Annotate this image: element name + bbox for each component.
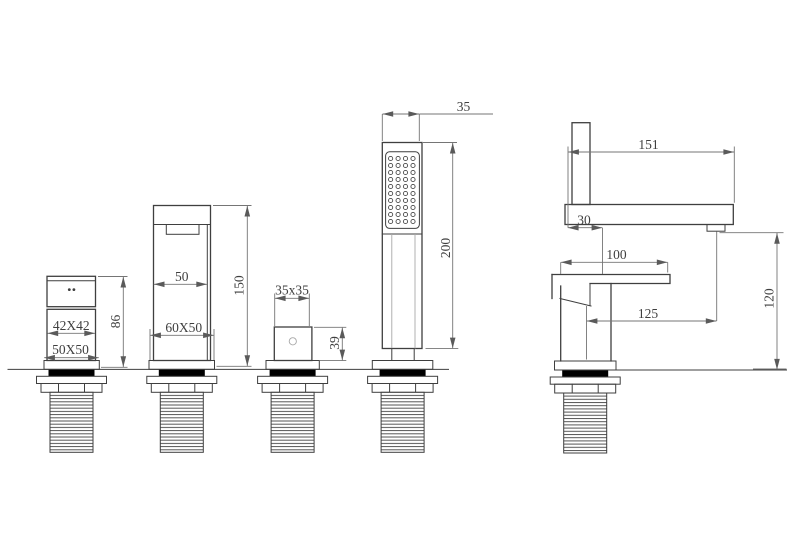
dim-30: 30 [568, 213, 603, 275]
dim-200: 200 [423, 143, 458, 349]
escutcheon-plate [555, 361, 617, 370]
spout-outlet-slot [166, 225, 199, 235]
mount-base [550, 370, 620, 453]
dim-label-120: 120 [762, 288, 777, 309]
spout-aerator-dot [68, 288, 71, 291]
dim-label-35x35: 35x35 [275, 283, 309, 298]
dim-150: 150 [213, 206, 252, 367]
dim-label-60x50: 60X50 [165, 320, 202, 335]
dim-label-100: 100 [606, 247, 627, 262]
escutcheon-plate [44, 361, 99, 370]
dim-label-30: 30 [577, 213, 591, 228]
dim-35: 35 [382, 99, 493, 141]
view-mixer-side: 151 30 100 125 120 [552, 123, 787, 370]
handle-stem [392, 349, 414, 361]
dim-120: 120 [720, 233, 787, 370]
view-hand-shower: 35 200 [372, 99, 493, 370]
dim-label-151: 151 [638, 137, 658, 152]
shower-holder-side [572, 123, 590, 205]
view-spout-small: 42X42 50X50 86 [44, 276, 128, 369]
dim-42x42: 42X42 [48, 318, 96, 333]
spout-aerator-dot [73, 288, 76, 291]
dim-label-50: 50 [175, 269, 189, 284]
faucet-technical-drawing: 42X42 50X50 86 50 60X50 150 [0, 0, 800, 551]
dim-label-200: 200 [438, 238, 453, 259]
escutcheon-plate [266, 361, 319, 370]
dim-label-86: 86 [108, 315, 123, 329]
escutcheon-plate [149, 361, 215, 370]
drawing-canvas: 42X42 50X50 86 50 60X50 150 [0, 0, 800, 551]
dim-label-42x42: 42X42 [53, 318, 90, 333]
dim-60x50: 60X50 [150, 320, 214, 360]
dim-86: 86 [98, 277, 128, 368]
dim-151: 151 [568, 137, 734, 228]
mount-base [368, 370, 438, 453]
dim-39: 39 [314, 327, 346, 360]
mount-base [147, 370, 217, 453]
dim-label-35: 35 [457, 99, 471, 114]
knob-button [289, 338, 296, 345]
view-diverter: 35x35 39 [266, 283, 346, 370]
dim-label-150: 150 [232, 275, 247, 296]
dim-35x35: 35x35 [275, 283, 310, 327]
dim-50x50: 50X50 [44, 342, 99, 358]
dim-label-125: 125 [638, 306, 659, 321]
dim-100: 100 [561, 247, 668, 274]
mount-bases [37, 370, 621, 454]
spout-outlet-nub [707, 225, 725, 232]
dim-50: 50 [154, 269, 207, 284]
spray-nozzles [389, 156, 416, 223]
escutcheon-plate [372, 361, 433, 370]
mount-base [258, 370, 328, 453]
view-spout-tall: 50 60X50 150 [149, 206, 252, 370]
dim-label-39: 39 [327, 336, 342, 350]
dim-label-50x50: 50X50 [52, 342, 89, 357]
mount-base [37, 370, 107, 453]
